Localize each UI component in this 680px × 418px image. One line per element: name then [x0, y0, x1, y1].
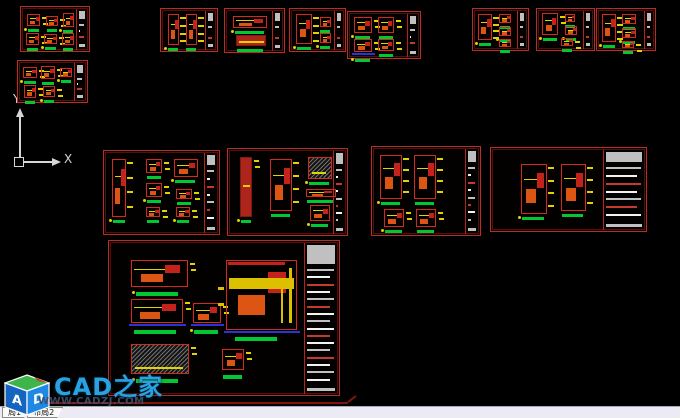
dim-text-dash — [185, 302, 190, 304]
label-bar — [297, 47, 311, 50]
detail-fill-spot — [175, 20, 178, 29]
detail-fill-spot — [155, 210, 159, 213]
title-strip-border — [644, 11, 645, 49]
label-symbol-dot — [173, 219, 176, 222]
title-strip-mark — [586, 36, 589, 38]
detail-fill-spot — [385, 177, 393, 189]
detail-fill-spot — [420, 219, 428, 224]
label-bar — [168, 48, 178, 51]
title-strip-mark — [207, 170, 214, 172]
detail-fill-spot — [156, 162, 160, 166]
detail-blob — [26, 33, 39, 45]
sheet-13[interactable] — [490, 147, 647, 232]
title-strip-mark — [79, 36, 84, 38]
detail-fill-spot — [193, 20, 196, 29]
detail-blob — [308, 157, 332, 179]
detail-blob — [176, 189, 192, 199]
label-bar — [147, 220, 159, 223]
title-strip-mark — [208, 26, 212, 28]
title-strip-mark — [606, 183, 641, 185]
label-bar — [500, 50, 510, 53]
title-strip-mark — [307, 284, 334, 286]
detail-fill-spot — [382, 26, 388, 30]
dim-text-dash — [637, 50, 642, 52]
label-bar — [311, 224, 328, 227]
detail-blob — [306, 189, 336, 197]
detail-fill-spot — [186, 192, 190, 195]
title-strip-mark — [307, 335, 330, 337]
title-strip-mark — [207, 201, 214, 203]
title-strip-block — [606, 224, 642, 227]
dim-leader-tick — [293, 162, 299, 164]
detail-blob — [478, 14, 492, 40]
title-strip-block — [337, 13, 341, 21]
dim-leader-tick — [437, 169, 443, 171]
dim-text-dash — [191, 347, 196, 349]
title-strip-block — [275, 45, 280, 48]
detail-fill-spot — [180, 195, 186, 198]
dim-text-dash — [254, 160, 259, 162]
title-strip-mark — [77, 88, 82, 90]
detail-fill-spot — [49, 22, 54, 25]
detail-fill-spot — [507, 41, 510, 43]
dim-leader-tick — [127, 206, 133, 208]
sheet-09[interactable] — [596, 8, 656, 51]
detail-fill-spot — [156, 186, 160, 190]
label-bar — [320, 46, 330, 49]
title-strip-mark — [207, 178, 210, 180]
section-arrow-icon — [218, 287, 224, 290]
detail-fill-spot — [365, 21, 370, 26]
dim-leader-tick — [198, 25, 204, 27]
title-strip-border — [272, 11, 273, 51]
detail-fill-spot — [121, 169, 125, 186]
title-strip-mark — [77, 83, 78, 85]
dim-leader-tick — [403, 191, 409, 193]
detail-fill-spot — [388, 42, 392, 46]
label-bar — [309, 182, 329, 185]
dim-leader-tick — [437, 180, 443, 182]
detail-blob — [354, 39, 372, 52]
detail-fill-spot — [429, 213, 434, 218]
detail-blob — [354, 17, 372, 33]
sheet-08[interactable] — [536, 8, 595, 51]
title-strip-mark — [307, 364, 330, 366]
sheet-10[interactable] — [103, 150, 220, 235]
dim-leader-tick — [403, 158, 409, 160]
title-strip-mark — [468, 197, 475, 199]
title-strip-mark — [336, 198, 342, 200]
label-bar — [223, 375, 242, 379]
detail-fill-spot — [44, 73, 49, 77]
title-strip-mark — [410, 42, 415, 44]
detail-fill-spot — [537, 173, 544, 188]
detail-fill-spot — [564, 43, 569, 45]
detail-blob — [622, 41, 634, 48]
detail-fill-spot — [63, 73, 68, 76]
dim-text-dash — [407, 218, 412, 220]
title-strip-border — [517, 11, 518, 49]
title-strip-block — [337, 44, 341, 47]
cad-canvas: Y X 局1布局2 A D CAD之家 WWW.CADZJ.COM — [0, 0, 680, 418]
title-strip-block — [647, 13, 651, 21]
dim-leader-tick — [313, 25, 319, 27]
detail-fill-spot — [275, 185, 283, 200]
label-bar — [45, 47, 56, 50]
dim-leader-tick — [548, 180, 554, 182]
watermark-site-url: WWW.CADZJ.COM — [38, 396, 145, 407]
title-strip-border — [465, 149, 466, 234]
detail-fill-spot — [631, 17, 635, 20]
label-bar — [562, 214, 583, 217]
detail-blob — [62, 33, 74, 45]
detail-fill-spot — [30, 21, 35, 24]
title-strip-block — [207, 155, 215, 165]
dim-text-dash — [406, 212, 411, 214]
title-strip-block — [586, 43, 590, 46]
label-bar — [147, 176, 161, 179]
title-strip-mark — [207, 194, 210, 196]
detail-blob — [565, 14, 575, 22]
detail-fill-spot — [327, 20, 330, 23]
title-strip-block — [79, 44, 85, 47]
blue-base-line — [352, 53, 375, 55]
label-symbol-dot — [109, 219, 112, 222]
title-strip-mark — [79, 24, 84, 26]
dim-leader-tick — [548, 167, 554, 169]
detail-blob — [168, 14, 179, 45]
sheet-05[interactable] — [289, 8, 346, 52]
detail-fill-spot — [397, 213, 402, 218]
detail-fill-spot — [66, 21, 70, 25]
label-symbol-dot — [305, 181, 308, 184]
detail-fill-spot — [150, 167, 156, 171]
title-strip-mark — [336, 169, 342, 171]
dim-text-dash — [165, 192, 170, 194]
dim-leader-tick — [437, 158, 443, 160]
title-strip-mark — [336, 212, 342, 214]
detail-blob — [63, 13, 74, 27]
label-bar — [479, 43, 491, 46]
detail-fill-spot — [189, 30, 193, 39]
section-top-band — [228, 262, 285, 265]
label-bar — [25, 101, 35, 104]
detail-blob — [521, 164, 547, 214]
sheet-12[interactable] — [371, 146, 481, 236]
detail-fill-spot — [32, 88, 35, 92]
label-bar — [415, 202, 434, 205]
detail-fill-spot — [236, 353, 242, 359]
label-symbol-dot — [40, 99, 43, 102]
label-symbol-dot — [132, 291, 135, 294]
detail-fill-spot — [47, 40, 52, 43]
detail-fill-spot — [239, 23, 252, 26]
detail-blob — [222, 349, 244, 370]
dim-leader-tick — [437, 191, 443, 193]
dim-leader-tick — [198, 17, 204, 19]
dim-leader-tick — [587, 191, 593, 193]
title-strip-block — [77, 95, 83, 98]
detail-fill-spot — [26, 73, 31, 76]
detail-fill-spot — [51, 89, 54, 92]
title-strip-mark — [275, 37, 279, 39]
detail-fill-spot — [388, 219, 396, 224]
label-symbol-dot — [316, 45, 319, 48]
title-strip-block — [520, 43, 524, 46]
ucs-icon: Y X — [8, 92, 88, 174]
dim-text-dash — [246, 352, 251, 354]
title-strip-mark — [336, 183, 342, 185]
label-symbol-dot — [518, 216, 521, 219]
detail-fill-spot — [189, 163, 195, 168]
cadzj-logo-icon: A D — [4, 374, 50, 416]
dim-leader-tick — [403, 169, 409, 171]
sheet-04[interactable] — [224, 8, 285, 53]
detail-fill-spot — [162, 304, 176, 311]
detail-blob — [270, 159, 292, 211]
detail-fill-spot — [238, 295, 265, 315]
sheet-03[interactable] — [160, 8, 218, 52]
detail-fill-spot — [35, 36, 38, 40]
label-bar — [307, 200, 333, 203]
label-bar — [522, 217, 544, 220]
detail-blob — [41, 66, 55, 79]
title-strip-border — [74, 63, 75, 101]
detail-fill-spot — [507, 16, 510, 19]
detail-blob — [565, 26, 577, 35]
detail-fill-spot — [502, 19, 507, 22]
title-strip-block — [410, 16, 416, 24]
title-strip-block — [307, 388, 335, 391]
title-strip-mark — [307, 371, 334, 373]
detail-fill-spot — [140, 312, 160, 319]
dim-leader-tick — [587, 167, 593, 169]
label-bar — [543, 38, 557, 41]
dim-text-dash — [575, 41, 580, 43]
detail-blob — [23, 67, 37, 78]
ucs-x-axis-line — [24, 161, 52, 163]
detail-blob — [499, 27, 511, 36]
detail-blob — [193, 303, 221, 323]
detail-fill-spot — [631, 31, 635, 34]
detail-fill-spot — [625, 34, 630, 37]
section-yellow-post — [281, 281, 283, 323]
detail-fill-spot — [179, 213, 184, 216]
label-symbol-dot — [41, 46, 44, 49]
detail-fill-spot — [50, 69, 54, 73]
dim-text-dash — [164, 162, 169, 164]
detail-blob — [622, 28, 636, 38]
detail-blob — [60, 68, 72, 77]
detail-fill-spot — [227, 360, 235, 366]
label-bar — [241, 220, 251, 223]
detail-fill-spot — [428, 163, 434, 176]
detail-dim-line — [243, 185, 250, 187]
label-bar — [186, 48, 196, 51]
label-bar — [28, 29, 39, 32]
title-strip-mark — [606, 167, 641, 169]
detail-blob — [240, 157, 252, 217]
detail-blob — [226, 260, 297, 330]
detail-blob — [320, 17, 331, 27]
title-strip-mark — [468, 174, 471, 176]
detail-fill-spot — [198, 314, 209, 320]
label-symbol-dot — [539, 37, 542, 40]
dim-text-dash — [58, 95, 63, 97]
dim-text-dash — [186, 308, 191, 310]
label-symbol-dot — [171, 179, 174, 182]
title-strip-mark — [307, 313, 334, 315]
section-arrow-icon — [218, 303, 224, 306]
ucs-y-axis-line — [19, 117, 21, 159]
title-strip-mark — [77, 78, 82, 80]
detail-fill-spot — [576, 173, 583, 187]
detail-dim-line — [312, 172, 326, 174]
title-strip-mark — [336, 190, 338, 192]
title-strip-mark — [520, 26, 523, 28]
sheet-01[interactable] — [20, 6, 90, 52]
label-symbol-dot — [377, 201, 380, 204]
title-strip-mark — [468, 182, 475, 184]
sheet-07[interactable] — [472, 8, 529, 51]
title-strip-mark — [208, 37, 212, 39]
detail-blob — [186, 14, 197, 45]
dim-text-dash — [191, 269, 196, 271]
label-symbol-dot — [307, 223, 310, 226]
label-bar — [63, 48, 73, 51]
detail-blob — [320, 33, 331, 43]
title-strip-mark — [207, 209, 210, 211]
detail-dim-line — [236, 20, 256, 21]
title-strip-mark — [647, 36, 650, 38]
label-symbol-dot — [190, 329, 193, 332]
detail-fill-spot — [323, 39, 327, 42]
title-strip-block — [79, 11, 85, 19]
title-strip-mark — [336, 205, 338, 207]
title-strip-mark — [207, 217, 214, 219]
detail-fill-spot — [65, 40, 70, 43]
label-symbol-dot — [351, 35, 354, 38]
title-strip-border — [407, 14, 408, 57]
label-symbol-dot — [20, 80, 23, 83]
label-bar — [355, 59, 370, 62]
ucs-y-arrow-icon — [16, 108, 24, 117]
title-strip-border — [304, 243, 305, 394]
title-strip-mark — [410, 29, 415, 31]
sheet-02[interactable] — [17, 60, 88, 103]
dim-text-dash — [190, 263, 195, 265]
detail-fill-spot — [32, 70, 36, 73]
title-strip-block — [410, 51, 416, 54]
sheet-11[interactable] — [227, 148, 348, 236]
dim-leader-tick — [548, 205, 554, 207]
title-strip-block — [520, 13, 524, 21]
dim-text-dash — [247, 358, 252, 360]
title-strip-border — [76, 9, 77, 50]
detail-fill-spot — [327, 36, 330, 39]
detail-blob — [414, 155, 436, 199]
title-strip-block — [208, 44, 213, 47]
title-strip-block — [275, 13, 280, 21]
detail-blob — [27, 14, 40, 26]
label-bar — [47, 29, 57, 32]
detail-blob — [131, 260, 188, 287]
detail-fill-spot — [566, 188, 576, 201]
label-symbol-dot — [164, 47, 167, 50]
detail-blob — [602, 14, 616, 42]
label-symbol-dot — [293, 46, 296, 49]
detail-fill-spot — [552, 18, 556, 25]
detail-fill-spot — [46, 92, 51, 95]
dim-leader-tick — [617, 24, 623, 26]
dim-leader-tick — [548, 192, 554, 194]
title-strip-mark — [468, 189, 471, 191]
label-symbol-dot — [231, 30, 234, 33]
detail-fill-spot — [54, 19, 57, 22]
title-strip-mark — [207, 186, 214, 188]
detail-fill-spot — [314, 214, 322, 218]
blue-base-line — [224, 331, 300, 333]
detail-blob — [499, 14, 511, 23]
title-strip-mark — [606, 191, 637, 193]
blue-base-line — [191, 324, 224, 326]
watermark: A D CAD之家 — [4, 374, 163, 416]
title-strip-mark — [520, 36, 523, 38]
detail-blob — [176, 207, 190, 217]
detail-blob — [24, 85, 36, 98]
label-bar — [237, 49, 263, 52]
label-symbol-dot — [59, 29, 62, 32]
dim-text-dash — [576, 47, 581, 49]
dim-leader-tick — [293, 175, 299, 177]
title-strip-block — [336, 153, 343, 164]
label-symbol-dot — [381, 229, 384, 232]
detail-fill-spot — [382, 46, 388, 49]
label-symbol-dot — [24, 28, 27, 31]
detail-fill-spot — [365, 42, 370, 46]
dim-text-dash — [438, 212, 443, 214]
detail-fill-spot — [625, 45, 630, 47]
detail-fill-spot — [70, 16, 73, 20]
title-strip-block — [606, 152, 642, 162]
dim-text-dash — [57, 89, 62, 91]
dim-text-dash — [255, 166, 260, 168]
dim-text-dash — [397, 26, 402, 28]
detail-fill-spot — [306, 20, 310, 29]
sheet-06[interactable] — [347, 11, 421, 59]
dim-leader-tick — [587, 202, 593, 204]
label-bar — [417, 230, 434, 233]
detail-fill-spot — [68, 70, 71, 73]
title-strip-mark — [275, 26, 279, 28]
detail-fill-spot — [284, 168, 290, 184]
title-strip-border — [603, 150, 604, 230]
title-strip-mark — [468, 167, 475, 169]
detail-fill-spot — [36, 17, 39, 21]
dim-leader-tick — [127, 177, 133, 179]
dim-text-dash — [192, 353, 197, 355]
title-strip-block — [208, 13, 213, 21]
title-strip-mark — [410, 36, 411, 38]
detail-fill-spot — [388, 21, 392, 26]
title-strip-mark — [606, 175, 637, 177]
detail-fill-spot — [29, 40, 34, 43]
dim-text-dash — [164, 186, 169, 188]
title-strip-mark — [337, 37, 340, 39]
detail-fill-spot — [210, 307, 217, 313]
detail-dim-line — [134, 269, 168, 270]
title-strip-mark — [336, 176, 338, 178]
